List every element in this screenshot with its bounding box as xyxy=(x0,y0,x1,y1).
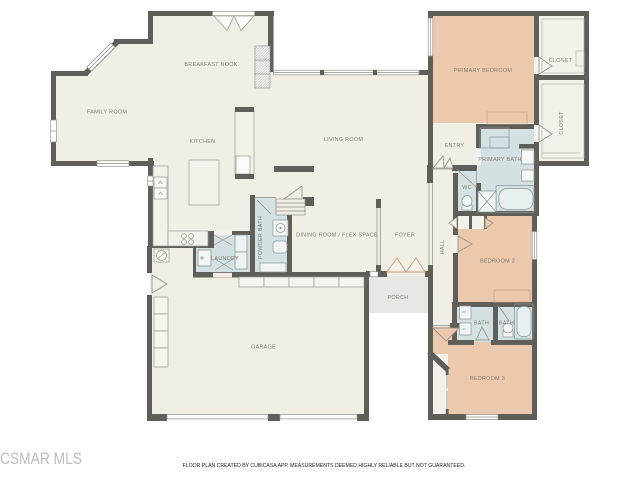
svg-text:LAUNDRY: LAUNDRY xyxy=(211,256,239,262)
svg-text:BATH: BATH xyxy=(499,321,514,327)
svg-text:BATH: BATH xyxy=(474,321,489,327)
svg-text:PRIMARY BATH: PRIMARY BATH xyxy=(478,157,521,163)
svg-text:CLOSET: CLOSET xyxy=(549,58,573,64)
svg-text:CLOSET: CLOSET xyxy=(559,111,565,135)
svg-text:LIVING ROOM: LIVING ROOM xyxy=(324,137,363,143)
svg-text:BEDROOM 2: BEDROOM 2 xyxy=(480,259,515,265)
svg-text:PORCH: PORCH xyxy=(388,295,409,301)
svg-text:HALL: HALL xyxy=(440,240,446,255)
svg-text:WC: WC xyxy=(462,185,472,191)
svg-text:PRIMARY BEDROOM: PRIMARY BEDROOM xyxy=(454,68,512,74)
svg-text:ENTRY: ENTRY xyxy=(445,143,465,149)
svg-text:FLOOR PLAN CREATED BY CUBICASA: FLOOR PLAN CREATED BY CUBICASA APP. MEAS… xyxy=(183,463,466,469)
svg-text:GARAGE: GARAGE xyxy=(251,345,276,351)
svg-text:FAMILY ROOM: FAMILY ROOM xyxy=(87,110,127,116)
svg-text:BEDROOM 3: BEDROOM 3 xyxy=(470,376,505,382)
svg-text:CSMAR MLS: CSMAR MLS xyxy=(0,450,82,468)
svg-text:BREAKFAST NOOK: BREAKFAST NOOK xyxy=(184,62,237,68)
svg-text:KITCHEN: KITCHEN xyxy=(190,139,216,145)
svg-text:DINING ROOM / FLEX SPACE: DINING ROOM / FLEX SPACE xyxy=(296,233,378,239)
svg-text:FOYER: FOYER xyxy=(395,233,415,239)
svg-text:POWDER BATH: POWDER BATH xyxy=(258,216,264,259)
